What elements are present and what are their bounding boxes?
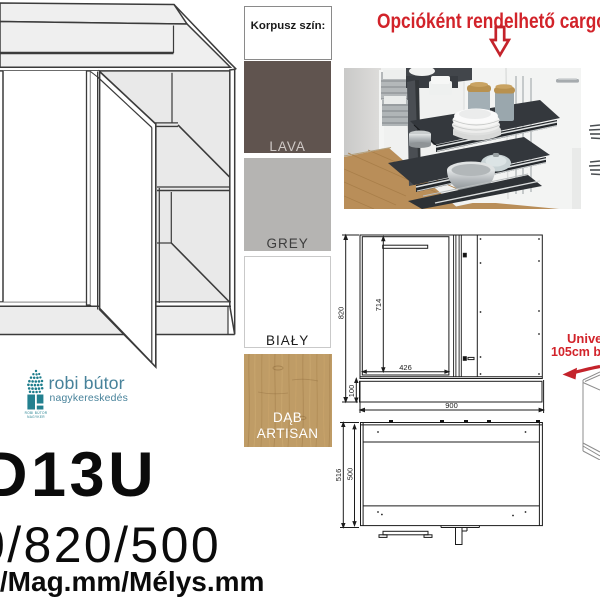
- svg-text:516: 516: [335, 469, 343, 482]
- svg-text:714: 714: [374, 299, 383, 312]
- svg-text:426: 426: [399, 363, 412, 372]
- svg-text:500: 500: [346, 468, 355, 481]
- svg-text:820: 820: [337, 307, 346, 320]
- svg-text:100: 100: [347, 385, 356, 398]
- svg-text:900: 900: [445, 401, 458, 410]
